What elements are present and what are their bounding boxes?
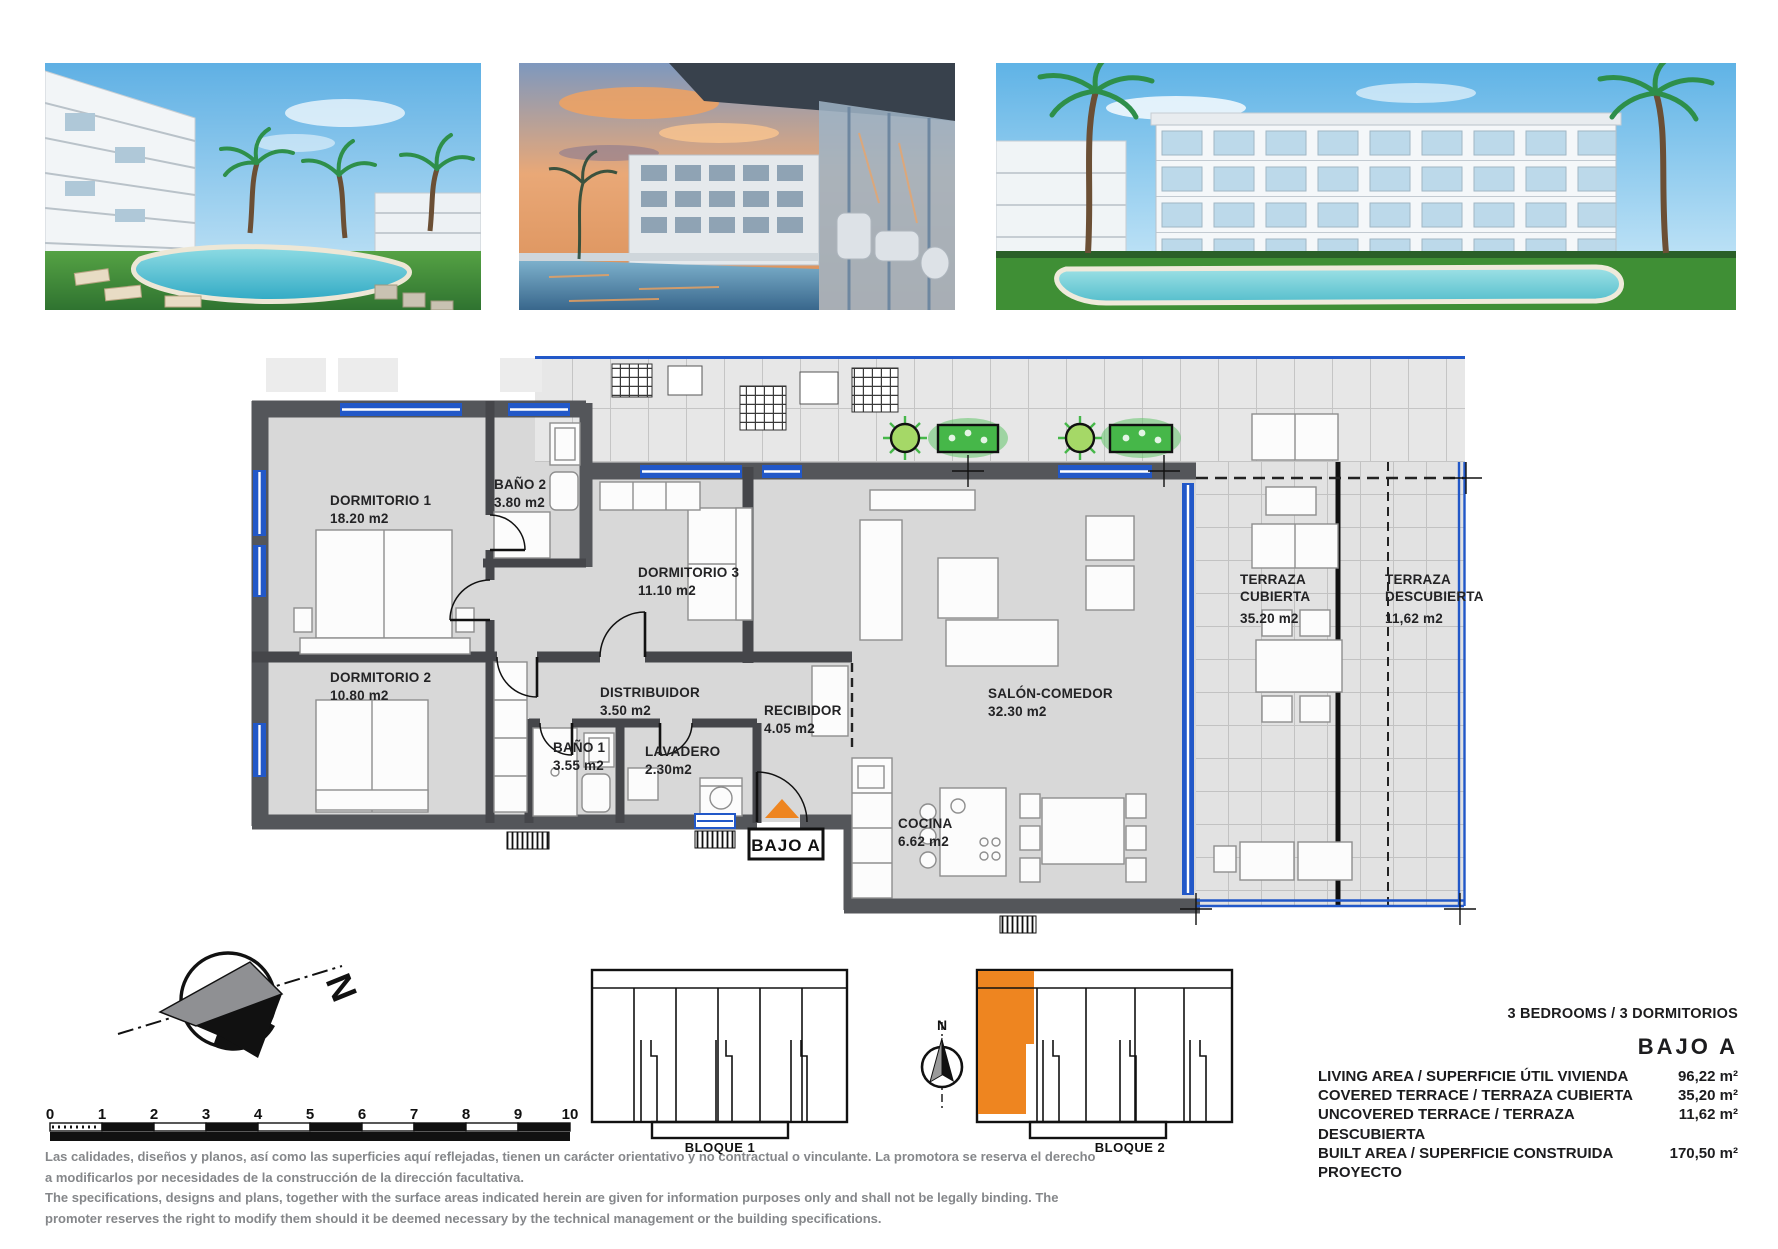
plant-icon-hedge-2 <box>1101 418 1181 458</box>
disclaimer-es: Las calidades, diseños y planos, así com… <box>45 1147 1097 1188</box>
room-label: SALÓN-COMEDOR <box>988 686 1113 701</box>
room-label: DORMITORIO 2 <box>330 670 431 685</box>
room-label: TERRAZA <box>1240 572 1306 587</box>
room-area: 2.30m2 <box>645 762 692 777</box>
svg-text:4: 4 <box>254 1106 263 1123</box>
svg-text:3: 3 <box>202 1106 210 1123</box>
room-area: 3.80 m2 <box>494 495 545 510</box>
unit-label-box: BAJO A <box>749 829 823 859</box>
room-area: 11,62 m2 <box>1385 611 1443 626</box>
svg-text:9: 9 <box>514 1106 522 1123</box>
svg-text:8: 8 <box>462 1106 470 1123</box>
room-area: 6.62 m2 <box>898 834 949 849</box>
room-label: CUBIERTA <box>1240 589 1310 604</box>
spec-row: UNCOVERED TERRACE / TERRAZA DESCUBIERTA … <box>1318 1105 1738 1143</box>
unit-label: BAJO A <box>751 836 821 855</box>
spec-label: UNCOVERED TERRACE / TERRAZA DESCUBIERTA <box>1318 1105 1667 1143</box>
room-label: DISTRIBUIDOR <box>600 685 700 700</box>
svg-text:7: 7 <box>410 1106 418 1123</box>
room-label: BAÑO 2 <box>494 477 546 492</box>
room-label: BAÑO 1 <box>553 740 605 755</box>
walkway-faint-tiles <box>266 358 542 392</box>
spec-label: BUILT AREA / SUPERFICIE CONSTRUIDA PROYE… <box>1318 1144 1658 1182</box>
room-area: 3.50 m2 <box>600 703 651 718</box>
block2-key-diagram: BLOQUE 2 <box>977 970 1232 1155</box>
room-label: DORMITORIO 1 <box>330 493 431 508</box>
unit-specs: 3 BEDROOMS / 3 DORMITORIOS BAJO A LIVING… <box>1318 1006 1738 1182</box>
svg-text:5: 5 <box>306 1106 314 1123</box>
room-area: 18.20 m2 <box>330 511 389 526</box>
north-letter: N <box>937 1017 947 1033</box>
room-label: RECIBIDOR <box>764 703 842 718</box>
svg-text:1: 1 <box>98 1106 106 1123</box>
disclaimer-en: The specifications, designs and plans, t… <box>45 1188 1097 1229</box>
graphic-scale: 0 1 2 3 4 5 6 7 8 9 10 <box>46 1106 579 1141</box>
spec-row: LIVING AREA / SUPERFICIE ÚTIL VIVIENDA 9… <box>1318 1067 1738 1086</box>
bedrooms-line: 3 BEDROOMS / 3 DORMITORIOS <box>1318 1006 1738 1022</box>
svg-text:0: 0 <box>46 1106 54 1123</box>
svg-text:6: 6 <box>358 1106 366 1123</box>
room-label: LAVADERO <box>645 744 720 759</box>
room-label: TERRAZA <box>1385 572 1451 587</box>
spec-value: 96,22 m² <box>1666 1067 1738 1086</box>
room-label: DESCUBIERTA <box>1385 589 1484 604</box>
spec-row: COVERED TERRACE / TERRAZA CUBIERTA 35,20… <box>1318 1086 1738 1105</box>
north-letter: N <box>318 968 366 1007</box>
room-area: 32.30 m2 <box>988 704 1047 719</box>
spec-label: LIVING AREA / SUPERFICIE ÚTIL VIVIENDA <box>1318 1067 1628 1086</box>
svg-text:10: 10 <box>562 1106 579 1123</box>
legal-disclaimer: Las calidades, diseños y planos, así com… <box>45 1147 1097 1229</box>
spec-value: 11,62 m² <box>1667 1105 1738 1143</box>
block2-label: BLOQUE 2 <box>1095 1140 1165 1155</box>
room-label: DORMITORIO 3 <box>638 565 739 580</box>
svg-text:2: 2 <box>150 1106 158 1123</box>
spec-row: BUILT AREA / SUPERFICIE CONSTRUIDA PROYE… <box>1318 1144 1738 1182</box>
brochure-page: BAJO A DORMITORIO 1 18.20 m2 BAÑO 2 3.80… <box>0 0 1778 1249</box>
plant-icon-hedge-1 <box>928 418 1008 458</box>
room-area: 10.80 m2 <box>330 688 389 703</box>
room-area: 4.05 m2 <box>764 721 815 736</box>
room-area: 35.20 m2 <box>1240 611 1299 626</box>
room-area: 11.10 m2 <box>638 583 696 598</box>
north-indicator-icon: N <box>922 1017 962 1112</box>
spec-value: 170,50 m² <box>1658 1144 1738 1182</box>
room-label: COCINA <box>898 816 952 831</box>
block1-key-diagram: BLOQUE 1 <box>592 970 847 1155</box>
room-area: 3.55 m2 <box>553 758 604 773</box>
highlighted-unit-bajo-a <box>978 971 1034 1114</box>
north-compass-icon: N <box>118 953 365 1058</box>
spec-label: COVERED TERRACE / TERRAZA CUBIERTA <box>1318 1086 1633 1105</box>
specs-unit-title: BAJO A <box>1318 1034 1738 1060</box>
spec-value: 35,20 m² <box>1666 1086 1738 1105</box>
